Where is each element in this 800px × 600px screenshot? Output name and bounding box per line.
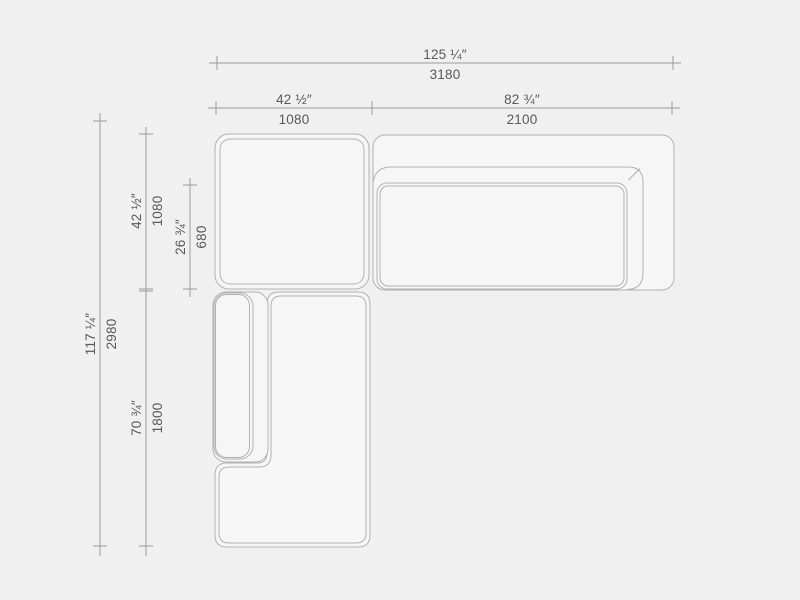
dim-label-mm: 2980 <box>104 319 119 350</box>
dim-label-inches: 125 ¼″ <box>423 47 467 62</box>
dim-depth-top-module: 42 ½″ 1080 <box>129 127 165 297</box>
corner-module-outline <box>215 134 369 289</box>
dim-label-inches: 82 ¾″ <box>504 92 540 107</box>
dim-label-mm: 1080 <box>279 112 310 127</box>
dim-label-mm: 1080 <box>150 196 165 227</box>
dim-label-inches: 117 ¼″ <box>83 313 98 356</box>
dim-label-inches: 26 ¾″ <box>173 219 188 255</box>
dim-label-inches: 42 ½″ <box>129 193 144 229</box>
dim-label-inches: 70 ¾″ <box>129 400 144 436</box>
dimension-annotations: 125 ¼″ 3180 42 ½″ 1080 82 ¾″ 2100 117 ¼″ <box>83 47 681 556</box>
dim-depth-bottom-module: 70 ¾″ 1800 <box>129 284 165 556</box>
right-sofa-module <box>373 135 674 290</box>
dim-label-mm: 680 <box>194 225 209 248</box>
dim-label-inches: 42 ½″ <box>276 92 312 107</box>
dim-depth-seat: 26 ¾″ 680 <box>173 178 209 297</box>
sectional-sofa-technical-drawing: 125 ¼″ 3180 42 ½″ 1080 82 ¾″ 2100 117 ¼″ <box>0 0 800 600</box>
dim-depth-total: 117 ¼″ 2980 <box>83 113 119 556</box>
right-module-seat-cushion <box>377 183 627 289</box>
dim-label-mm: 3180 <box>430 67 461 82</box>
chaise-backrest-cushion <box>214 293 253 459</box>
dim-label-mm: 2100 <box>507 112 538 127</box>
corner-module <box>215 134 369 289</box>
sofa-top-view <box>213 134 674 547</box>
furniture-dimension-diagram: 125 ¼″ 3180 42 ½″ 1080 82 ¾″ 2100 117 ¼″ <box>0 0 800 600</box>
bottom-chaise-module <box>213 292 370 547</box>
dim-width-modules: 42 ½″ 1080 82 ¾″ 2100 <box>208 92 680 127</box>
dim-width-total: 125 ¼″ 3180 <box>209 47 681 82</box>
dim-label-mm: 1800 <box>150 403 165 434</box>
